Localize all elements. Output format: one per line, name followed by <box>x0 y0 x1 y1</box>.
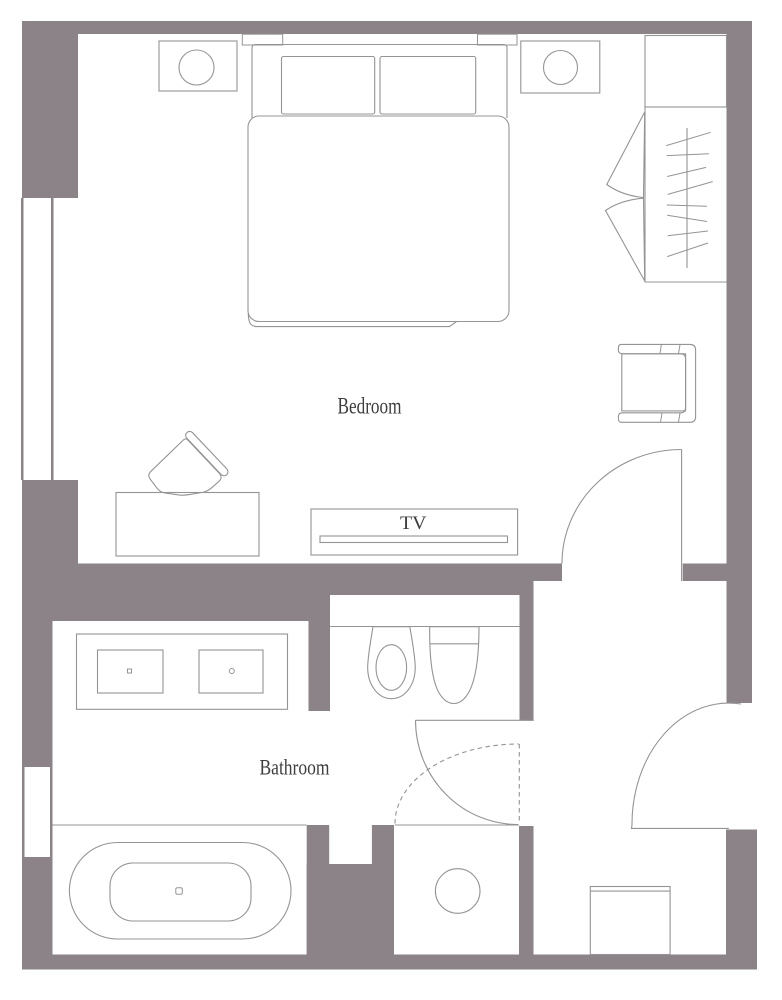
svg-text:TV: TV <box>400 514 427 534</box>
svg-text:Bathroom: Bathroom <box>260 755 330 780</box>
svg-text:Bedroom: Bedroom <box>338 394 402 419</box>
